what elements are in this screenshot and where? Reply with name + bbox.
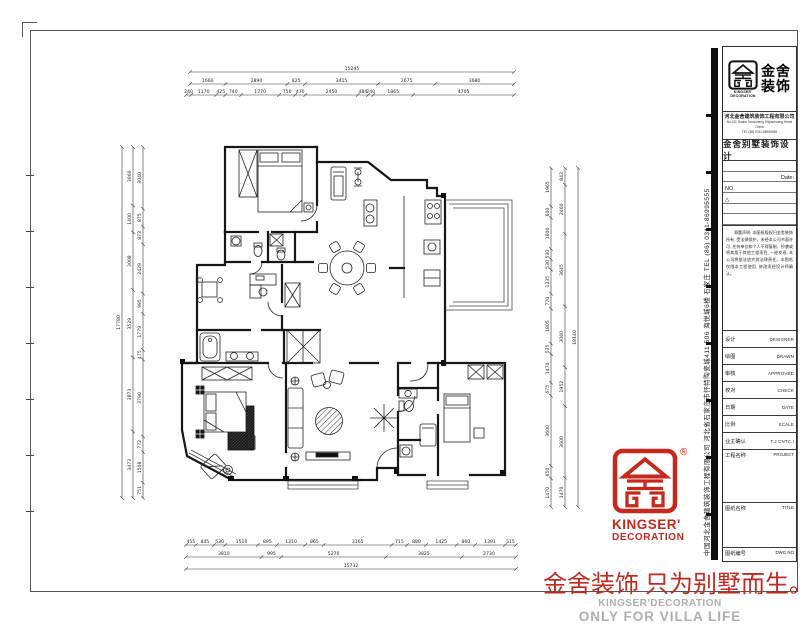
svg-text:3810: 3810 [218, 551, 230, 557]
svg-text:772: 772 [137, 440, 143, 449]
delta-mark: △ [723, 193, 796, 204]
svg-text:860: 860 [461, 539, 470, 545]
svg-text:740: 740 [229, 89, 238, 95]
field-drawn: 绘图DRAWN [723, 348, 796, 365]
svg-text:1425: 1425 [435, 539, 447, 545]
company-name: 河北金舍建筑装饰工程有限公司 [723, 113, 796, 120]
no-label: NO. [723, 182, 796, 193]
svg-text:3600: 3600 [545, 425, 551, 437]
svg-text:5270: 5270 [328, 551, 340, 557]
svg-text:1508: 1508 [137, 462, 143, 474]
kingser-logo-icon-red [612, 448, 678, 514]
svg-text:1952: 1952 [559, 381, 565, 393]
footer-en-1: KINGSER'DECORATION [545, 598, 775, 609]
svg-text:650: 650 [545, 468, 551, 477]
svg-text:995: 995 [137, 299, 143, 308]
svg-text:715: 715 [395, 539, 404, 545]
date-label: Date: [723, 172, 796, 183]
svg-text:1391: 1391 [484, 539, 496, 545]
svg-text:1470: 1470 [545, 362, 551, 374]
field-drawing-number: 图纸编号 DWG.NO [723, 548, 796, 561]
svg-text:18140: 18140 [572, 330, 578, 345]
svg-text:1779: 1779 [137, 326, 143, 338]
svg-text:240: 240 [366, 89, 375, 95]
logo-en-text: KINGSER' DECORATION [730, 90, 755, 98]
svg-text:455: 455 [186, 539, 195, 545]
svg-text:873: 873 [137, 231, 143, 240]
svg-text:4705: 4705 [458, 89, 470, 95]
svg-text:3040: 3040 [137, 172, 143, 184]
field-project: 工程名称 PROJECT [723, 450, 796, 503]
ruled-lines: Date: NO. △ [723, 161, 796, 226]
svg-text:843: 843 [559, 172, 565, 181]
company-address-1: No.411 Huaite Taocicheng Shijiazhuang He… [723, 120, 796, 130]
svg-text:3473: 3473 [127, 459, 133, 471]
svg-text:1470: 1470 [545, 487, 551, 499]
svg-text:825: 825 [292, 78, 301, 84]
dimension-chains: 1524516602890825341526753680240117042574… [116, 66, 580, 571]
registered-mark: ® [680, 448, 687, 458]
doc-title: 金舍别墅装饰设计 [723, 140, 796, 161]
svg-text:3790: 3790 [137, 392, 143, 404]
svg-text:15732: 15732 [344, 563, 359, 569]
svg-text:470: 470 [296, 89, 305, 95]
svg-text:2730: 2730 [483, 551, 495, 557]
svg-text:2890: 2890 [251, 78, 263, 84]
svg-text:3825: 3825 [418, 551, 430, 557]
company-address-2: TEL:(86) 0311-86995555 [723, 130, 796, 135]
svg-text:750: 750 [283, 89, 292, 95]
svg-text:17780: 17780 [116, 315, 122, 330]
brand-en-2: DECORATION [612, 532, 684, 543]
svg-text:3008: 3008 [127, 255, 133, 267]
svg-text:2450: 2450 [326, 89, 338, 95]
svg-text:1510: 1510 [236, 539, 248, 545]
svg-text:3415: 3415 [336, 78, 348, 84]
svg-text:530: 530 [545, 250, 551, 259]
brand-en-1: KINGSER' [612, 517, 681, 532]
svg-text:1865: 1865 [387, 89, 399, 95]
svg-text:3529: 3529 [127, 318, 133, 330]
title-block: KINGSER' DECORATION 金舍 装饰 河北金舍建筑装饰工程有限公司… [722, 46, 797, 562]
svg-text:530: 530 [545, 260, 551, 269]
svg-text:845: 845 [200, 539, 209, 545]
kingser-logo-icon [728, 60, 758, 90]
svg-text:1600: 1600 [545, 228, 551, 240]
svg-text:880: 880 [412, 539, 421, 545]
svg-text:3060: 3060 [559, 331, 565, 343]
floor-plan-drawing: 1524516602890825341526753680240117042574… [0, 0, 800, 640]
svg-text:2429: 2429 [137, 263, 143, 275]
svg-text:3600: 3600 [559, 436, 565, 448]
svg-text:3873: 3873 [127, 389, 133, 401]
logo-cn-text: 金舍 装饰 [761, 64, 791, 93]
svg-text:15245: 15245 [345, 66, 360, 72]
svg-text:895: 895 [263, 539, 272, 545]
svg-text:1470: 1470 [559, 486, 565, 498]
svg-text:2460: 2460 [559, 203, 565, 215]
field-approved: 审核APPROVED [723, 365, 796, 382]
brand-logo-block: ® KINGSER' DECORATION [612, 448, 716, 543]
svg-text:1660: 1660 [202, 78, 214, 84]
svg-text:515: 515 [506, 539, 515, 545]
svg-text:3680: 3680 [469, 78, 481, 84]
svg-text:1235: 1235 [545, 276, 551, 288]
svg-text:2675: 2675 [401, 78, 413, 84]
svg-text:530: 530 [215, 539, 224, 545]
svg-text:3060: 3060 [127, 170, 133, 182]
svg-text:770: 770 [545, 297, 551, 306]
svg-text:240: 240 [184, 89, 193, 95]
company-box: 河北金舍建筑装饰工程有限公司 No.411 Huaite Taocicheng … [723, 112, 796, 140]
svg-text:1310: 1310 [285, 539, 297, 545]
svg-text:535: 535 [545, 344, 551, 353]
titleblock-logo: KINGSER' DECORATION 金舍 装饰 [723, 47, 796, 112]
svg-text:1965: 1965 [545, 181, 551, 193]
svg-text:1400: 1400 [127, 213, 133, 225]
svg-text:875: 875 [137, 213, 143, 222]
svg-text:425: 425 [216, 89, 225, 95]
svg-text:1170: 1170 [198, 89, 210, 95]
svg-text:865: 865 [310, 539, 319, 545]
field-scale: 比例SCALE [723, 416, 796, 433]
svg-text:600: 600 [545, 208, 551, 217]
svg-text:1770: 1770 [254, 89, 266, 95]
field-drawing-title: 图纸名称 TITLE [723, 503, 796, 548]
svg-text:3165: 3165 [352, 539, 364, 545]
svg-text:1805: 1805 [545, 320, 551, 332]
copyright-notice: 郑重声明: 本图纸版权归金舍装饰所有, 受法律保护。未经本公司书面许可, 任何单… [723, 226, 796, 331]
footer-en-block: KINGSER'DECORATION ONLY FOR VILLA LIFE [545, 598, 775, 624]
slogan-text: 金舍装饰 只为别墅而生。 [543, 564, 798, 599]
svg-text:751: 751 [137, 486, 143, 495]
field-client-confirm: 业主确认T.J CNTC.I [723, 433, 796, 450]
svg-text:675: 675 [545, 385, 551, 394]
svg-text:995: 995 [267, 551, 276, 557]
furniture [196, 150, 503, 479]
field-designer: 设计DESIGNER [723, 331, 796, 348]
field-date: 日期DATE [723, 399, 796, 416]
svg-text:475: 475 [137, 350, 143, 359]
field-check: 校对CHECK [723, 382, 796, 399]
svg-text:3645: 3645 [559, 264, 565, 276]
footer-en-2: ONLY FOR VILLA LIFE [545, 609, 775, 624]
